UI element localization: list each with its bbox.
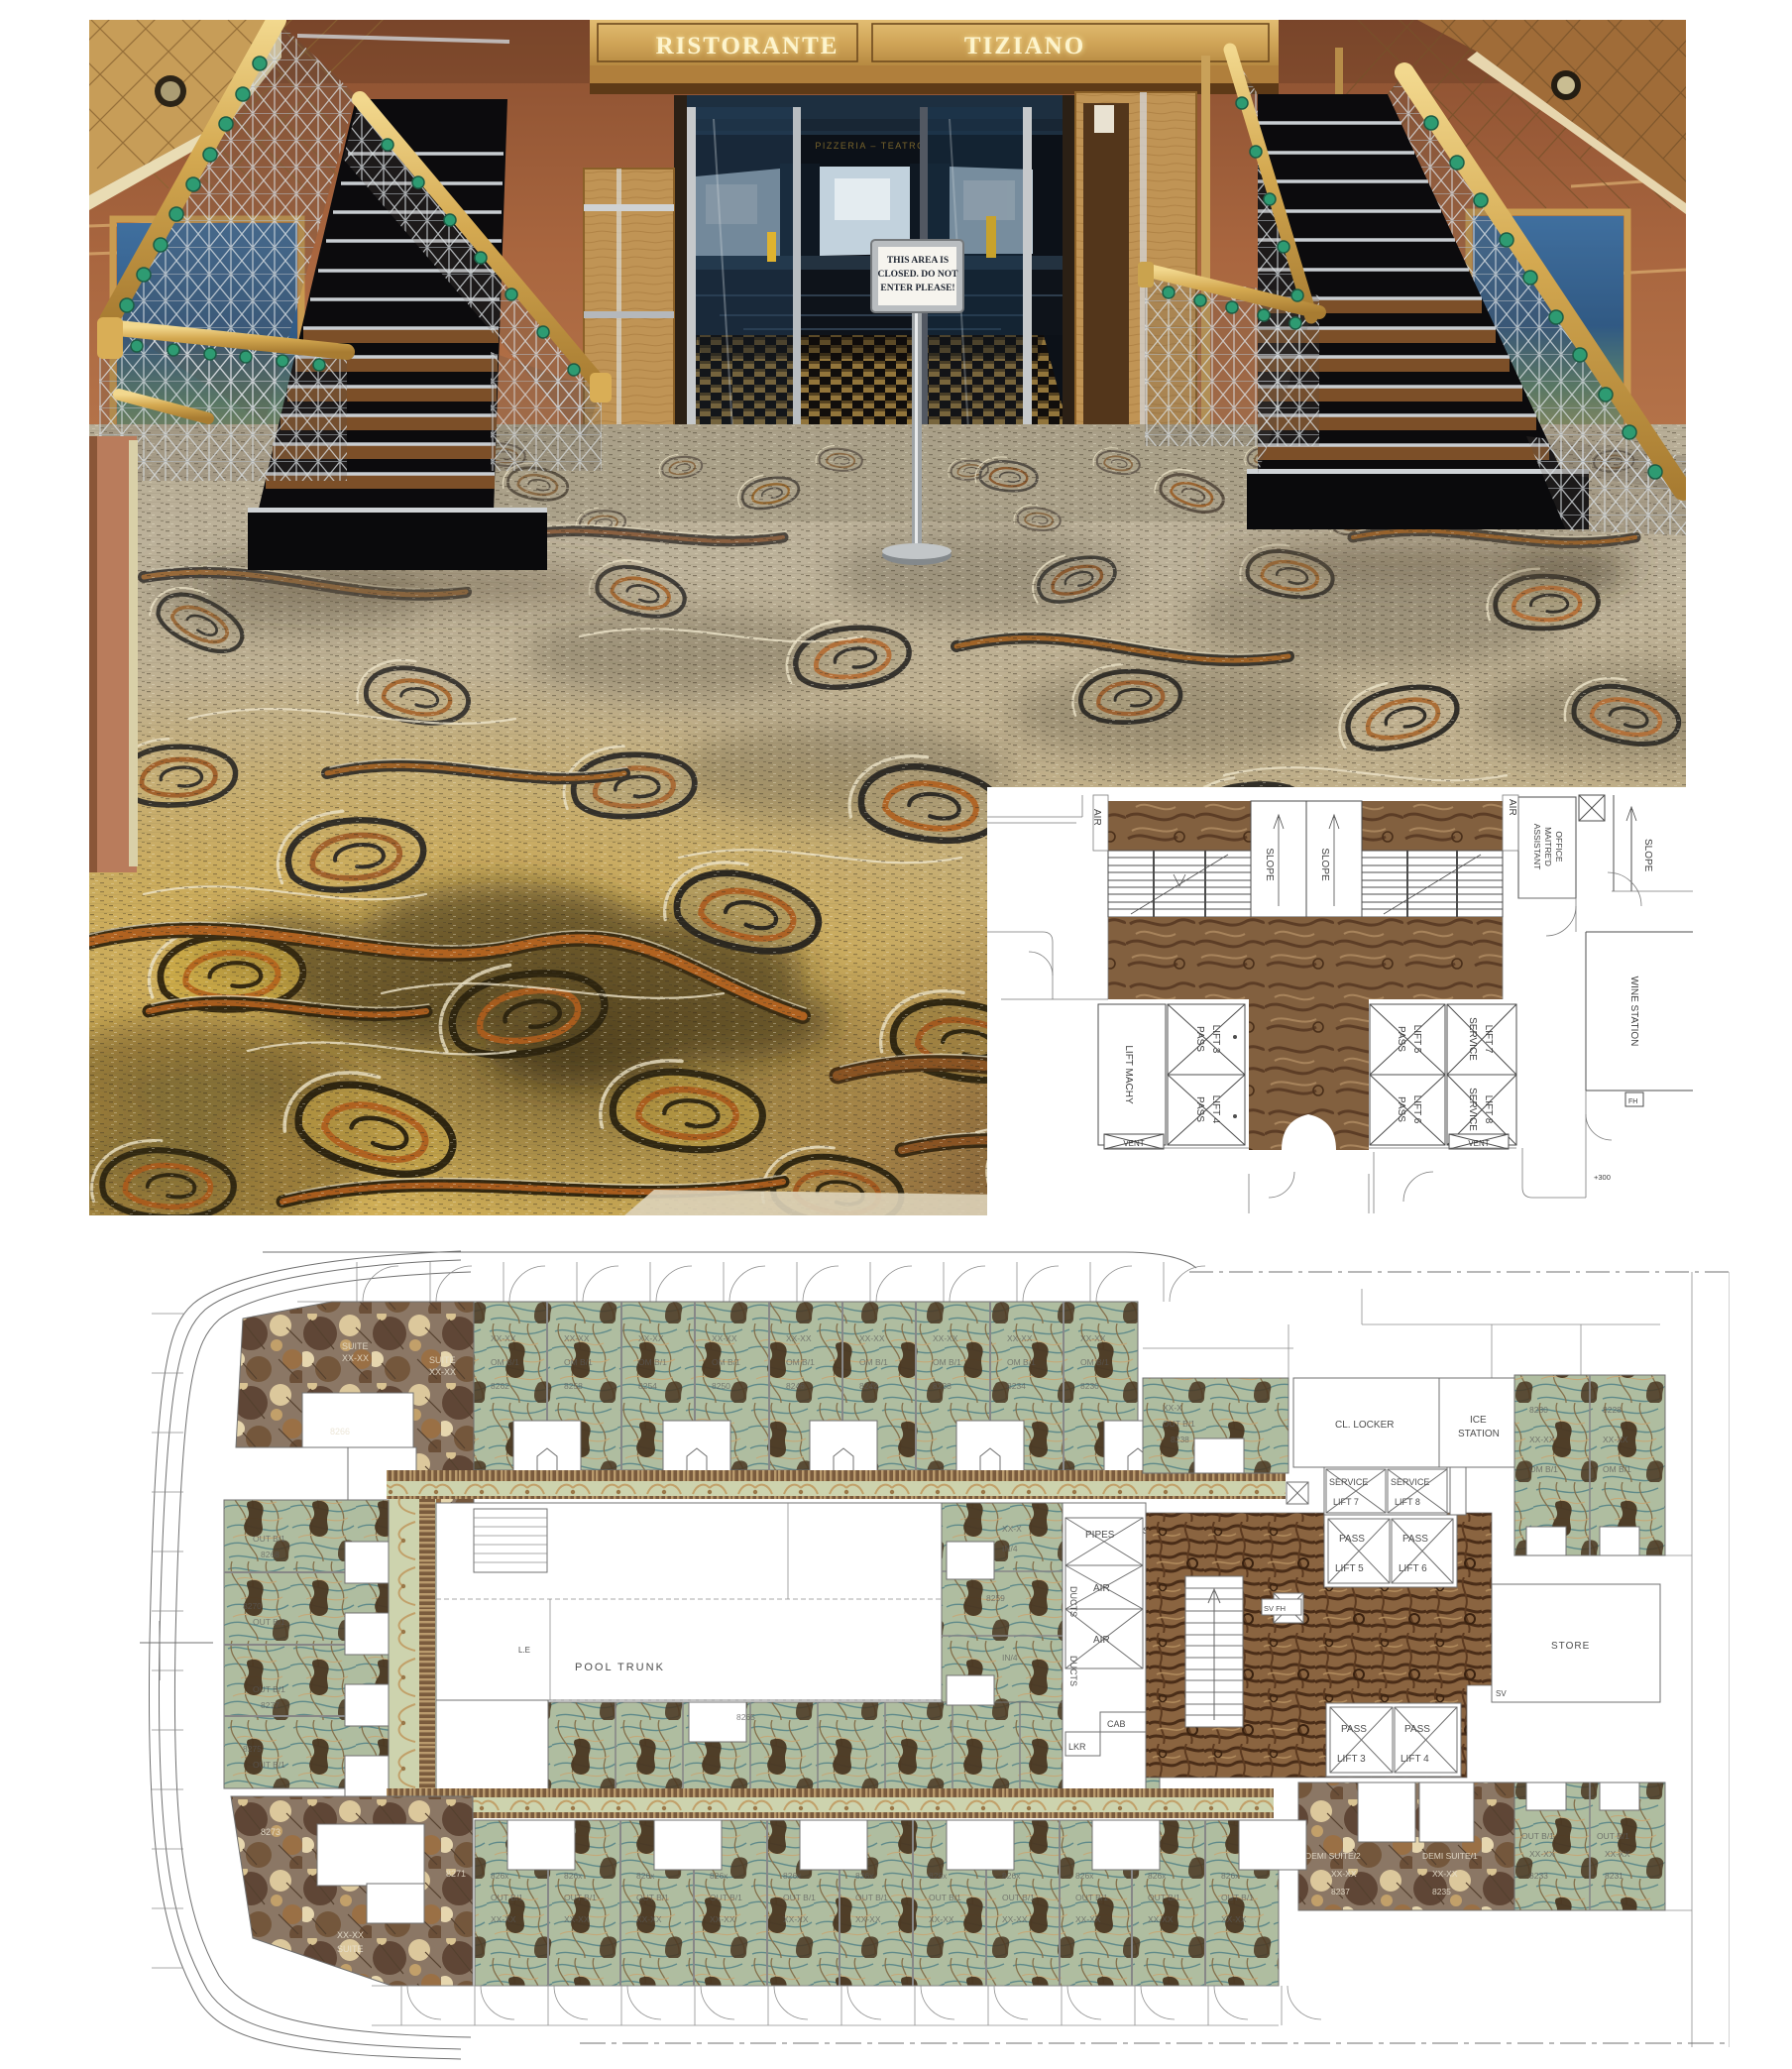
svg-text:8273: 8273	[261, 1827, 280, 1837]
svg-text:XX-XX: XX-XX	[491, 1333, 516, 1343]
svg-text:OUT B/1: OUT B/1	[783, 1893, 816, 1902]
svg-text:XX-XX: XX-XX	[636, 1914, 662, 1924]
svg-text:8271: 8271	[446, 1869, 466, 1879]
svg-text:LKR: LKR	[1068, 1742, 1086, 1752]
svg-text:LIFT 4: LIFT 4	[1210, 1095, 1221, 1124]
svg-text:OUT B/1: OUT B/1	[855, 1893, 888, 1902]
svg-text:SUITE: SUITE	[342, 1341, 369, 1351]
svg-text:XX-XX: XX-XX	[1529, 1849, 1555, 1859]
svg-text:PIZZERIA – TEATRO: PIZZERIA – TEATRO	[815, 141, 925, 151]
svg-text:OUT B/1: OUT B/1	[1002, 1893, 1035, 1902]
svg-text:8231: 8231	[1605, 1871, 1624, 1881]
svg-text:THIS AREA IS: THIS AREA IS	[887, 256, 949, 266]
svg-text:XX-XX: XX-XX	[1080, 1333, 1106, 1343]
svg-text:8230: 8230	[1529, 1405, 1548, 1415]
svg-text:OM B/1: OM B/1	[491, 1357, 519, 1367]
svg-text:FH: FH	[1628, 1098, 1637, 1105]
svg-text:CL. LOCKER: CL. LOCKER	[1335, 1420, 1394, 1431]
svg-text:MAITRE'D: MAITRE'D	[1543, 827, 1553, 866]
svg-text:OUT B/1: OUT B/1	[253, 1617, 285, 1627]
svg-text:SERVICE: SERVICE	[1391, 1477, 1429, 1487]
svg-text:LIFT 8: LIFT 8	[1483, 1095, 1494, 1124]
svg-text:8237: 8237	[1331, 1887, 1350, 1897]
svg-text:SERVICE: SERVICE	[1467, 1017, 1478, 1061]
svg-text:8270: 8270	[243, 1601, 262, 1611]
svg-text:XX-XX: XX-XX	[1148, 1914, 1174, 1924]
svg-text:8230: 8230	[1080, 1381, 1099, 1391]
svg-text:XX-XX: XX-XX	[1007, 1333, 1033, 1343]
svg-text:XX-XX: XX-XX	[491, 1914, 516, 1924]
svg-text:OFFICE: OFFICE	[1554, 831, 1564, 862]
svg-text:LIFT 8: LIFT 8	[1395, 1497, 1420, 1507]
svg-text:XX-XX: XX-XX	[1002, 1914, 1028, 1924]
svg-text:LIFT 3: LIFT 3	[1337, 1754, 1366, 1765]
svg-text:IN/4: IN/4	[1002, 1653, 1018, 1663]
svg-text:826x: 826x	[855, 1871, 874, 1881]
svg-text:L.E: L.E	[518, 1646, 530, 1655]
svg-text:XX-X: XX-X	[1002, 1524, 1022, 1534]
svg-text:8233: 8233	[1529, 1871, 1548, 1881]
svg-text:DEMI SUITE/2: DEMI SUITE/2	[1305, 1851, 1361, 1861]
svg-text:CLOSED. DO NOT: CLOSED. DO NOT	[877, 270, 958, 280]
svg-text:8258: 8258	[564, 1381, 583, 1391]
svg-text:XX-XX: XX-XX	[337, 1930, 364, 1940]
svg-text:OUT B/1: OUT B/1	[636, 1893, 669, 1902]
svg-text:8266: 8266	[330, 1427, 350, 1437]
svg-text:826x: 826x	[1221, 1871, 1240, 1881]
svg-text:826x: 826x	[564, 1871, 583, 1881]
svg-text:PASS: PASS	[1341, 1724, 1367, 1735]
svg-text:SLOPE: SLOPE	[1264, 848, 1275, 881]
svg-text:8275: 8275	[243, 1744, 262, 1754]
svg-text:AIR: AIR	[1507, 799, 1517, 816]
svg-text:IN/4: IN/4	[1002, 1544, 1018, 1553]
svg-text:XX-XX: XX-XX	[712, 1333, 737, 1343]
svg-text:XX-XX: XX-XX	[1075, 1914, 1101, 1924]
svg-text:LIFT 4: LIFT 4	[1400, 1754, 1429, 1765]
svg-text:LIFT 7: LIFT 7	[1483, 1025, 1494, 1054]
svg-text:8250: 8250	[712, 1381, 730, 1391]
svg-text:OUT B/1: OUT B/1	[1075, 1893, 1108, 1902]
svg-text:XX-XX: XX-XX	[1603, 1435, 1628, 1444]
svg-text:ENTER PLEASE!: ENTER PLEASE!	[880, 284, 954, 293]
svg-text:LIFT 3: LIFT 3	[1210, 1025, 1221, 1054]
svg-text:XX-XX: XX-XX	[564, 1333, 590, 1343]
svg-text:OM B/1: OM B/1	[1007, 1357, 1036, 1367]
svg-text:XX-XX: XX-XX	[429, 1367, 456, 1377]
svg-text:LIFT 6: LIFT 6	[1411, 1095, 1422, 1124]
svg-text:XX-XX: XX-XX	[638, 1333, 664, 1343]
svg-text:8235: 8235	[1432, 1887, 1451, 1897]
svg-text:ASSISTANT: ASSISTANT	[1532, 824, 1542, 870]
svg-text:XX-XX: XX-XX	[929, 1914, 954, 1924]
svg-text:OUT B/1: OUT B/1	[1597, 1831, 1629, 1841]
svg-text:+300: +300	[1594, 1173, 1611, 1182]
svg-text:VENT: VENT	[1123, 1139, 1144, 1148]
svg-text:RISTORANTE: RISTORANTE	[656, 33, 840, 59]
svg-text:SUITE: SUITE	[337, 1944, 364, 1954]
svg-text:826x: 826x	[636, 1871, 655, 1881]
svg-text:XX-XX: XX-XX	[1529, 1435, 1555, 1444]
svg-text:8265: 8265	[736, 1712, 755, 1722]
svg-text:8254: 8254	[638, 1381, 657, 1391]
svg-text:LIFT 6: LIFT 6	[1399, 1563, 1427, 1574]
svg-text:8277: 8277	[261, 1700, 280, 1710]
svg-text:OUT B/1: OUT B/1	[253, 1760, 285, 1770]
svg-text:8238: 8238	[1171, 1435, 1189, 1444]
svg-text:OUT B/1: OUT B/1	[253, 1684, 285, 1694]
svg-text:DUCTS: DUCTS	[1068, 1656, 1078, 1686]
svg-text:PASS: PASS	[1339, 1534, 1365, 1545]
svg-text:SV FH: SV FH	[1264, 1604, 1286, 1613]
svg-text:OM B/1: OM B/1	[638, 1357, 667, 1367]
svg-text:XX-XX: XX-XX	[859, 1333, 885, 1343]
svg-text:SERVICE: SERVICE	[1467, 1088, 1478, 1131]
svg-text:8228: 8228	[1603, 1405, 1622, 1415]
svg-text:SUITE: SUITE	[429, 1355, 456, 1365]
svg-text:SV: SV	[1496, 1689, 1507, 1698]
svg-text:SLOPE: SLOPE	[1642, 839, 1653, 872]
svg-text:8238: 8238	[933, 1381, 952, 1391]
svg-text:826x: 826x	[491, 1871, 509, 1881]
svg-text:8242: 8242	[859, 1381, 878, 1391]
svg-text:LIFT 5: LIFT 5	[1335, 1563, 1364, 1574]
svg-text:OUT B/1: OUT B/1	[253, 1534, 285, 1544]
svg-text:LIFT MACHY: LIFT MACHY	[1123, 1045, 1134, 1104]
svg-text:XX-XX: XX-XX	[855, 1914, 881, 1924]
svg-text:OUT B/1: OUT B/1	[491, 1893, 523, 1902]
svg-text:POOL TRUNK: POOL TRUNK	[575, 1662, 665, 1673]
svg-text:OM B/1: OM B/1	[712, 1357, 740, 1367]
svg-text:OM B/1: OM B/1	[1529, 1464, 1558, 1474]
svg-text:PASS: PASS	[1396, 1026, 1406, 1052]
svg-text:PASS: PASS	[1396, 1096, 1406, 1122]
svg-text:OM B/1: OM B/1	[859, 1357, 888, 1367]
svg-text:OUT B/1: OUT B/1	[1163, 1419, 1195, 1429]
svg-text:PIPES: PIPES	[1085, 1530, 1115, 1541]
svg-text:LIFT 7: LIFT 7	[1333, 1497, 1359, 1507]
svg-text:XX-XX: XX-XX	[933, 1333, 958, 1343]
svg-text:826x: 826x	[1148, 1871, 1167, 1881]
svg-text:DUCTS: DUCTS	[1068, 1586, 1078, 1617]
svg-text:SERVICE: SERVICE	[1329, 1477, 1368, 1487]
svg-text:PASS: PASS	[1404, 1724, 1430, 1735]
svg-text:8262: 8262	[491, 1381, 509, 1391]
svg-text:OUT B/1: OUT B/1	[710, 1893, 742, 1902]
svg-text:LIFT 5: LIFT 5	[1411, 1025, 1422, 1054]
svg-text:PASS: PASS	[1194, 1026, 1205, 1052]
svg-text:XX-XX: XX-XX	[786, 1333, 812, 1343]
svg-text:DEMI SUITE/1: DEMI SUITE/1	[1422, 1851, 1478, 1861]
svg-text:XX-XX: XX-XX	[1221, 1914, 1247, 1924]
svg-text:OUT B/1: OUT B/1	[929, 1893, 961, 1902]
svg-text:XX-XX: XX-XX	[1331, 1869, 1357, 1879]
svg-text:PASS: PASS	[1194, 1096, 1205, 1122]
svg-text:TIZIANO: TIZIANO	[964, 33, 1085, 59]
svg-text:826x: 826x	[1075, 1871, 1094, 1881]
svg-text:826x: 826x	[929, 1871, 948, 1881]
svg-text:VENT: VENT	[1468, 1139, 1489, 1148]
svg-text:826x: 826x	[1002, 1871, 1021, 1881]
svg-text:OUT B/1: OUT B/1	[1221, 1893, 1254, 1902]
svg-text:WINE STATION: WINE STATION	[1628, 977, 1639, 1047]
svg-text:OM B/1: OM B/1	[933, 1357, 961, 1367]
svg-text:CAB: CAB	[1107, 1719, 1126, 1729]
svg-text:XX-XX: XX-XX	[783, 1914, 809, 1924]
svg-text:AIR: AIR	[1093, 1635, 1110, 1646]
svg-text:STORE: STORE	[1551, 1641, 1590, 1652]
svg-text:OM B/1: OM B/1	[1603, 1464, 1631, 1474]
svg-text:XX-XX: XX-XX	[1605, 1849, 1630, 1859]
svg-text:STATION: STATION	[1458, 1429, 1500, 1439]
svg-text:8259: 8259	[986, 1593, 1005, 1603]
svg-text:XX-X: XX-X	[1163, 1403, 1182, 1413]
svg-text:OM B/1: OM B/1	[564, 1357, 593, 1367]
svg-text:8246: 8246	[786, 1381, 805, 1391]
svg-text:ICE: ICE	[1470, 1415, 1487, 1426]
svg-text:8268: 8268	[261, 1550, 280, 1559]
svg-text:826x: 826x	[783, 1871, 802, 1881]
svg-text:PASS: PASS	[1402, 1534, 1428, 1545]
svg-text:OM B/1: OM B/1	[786, 1357, 815, 1367]
svg-text:8234: 8234	[1007, 1381, 1026, 1391]
svg-text:OUT B/1: OUT B/1	[564, 1893, 597, 1902]
svg-text:XX-XX: XX-XX	[564, 1914, 590, 1924]
svg-text:826x: 826x	[710, 1871, 728, 1881]
svg-text:XX-XX: XX-XX	[342, 1353, 369, 1363]
svg-text:OM B/1: OM B/1	[1080, 1357, 1109, 1367]
svg-text:XX-XX: XX-XX	[710, 1914, 735, 1924]
svg-text:OUT B/1: OUT B/1	[1148, 1893, 1180, 1902]
svg-text:SLOPE: SLOPE	[1319, 848, 1330, 881]
svg-text:XX-XX: XX-XX	[1432, 1869, 1458, 1879]
svg-text:AIR: AIR	[1093, 1583, 1110, 1594]
svg-text:OUT B/1: OUT B/1	[1521, 1831, 1554, 1841]
